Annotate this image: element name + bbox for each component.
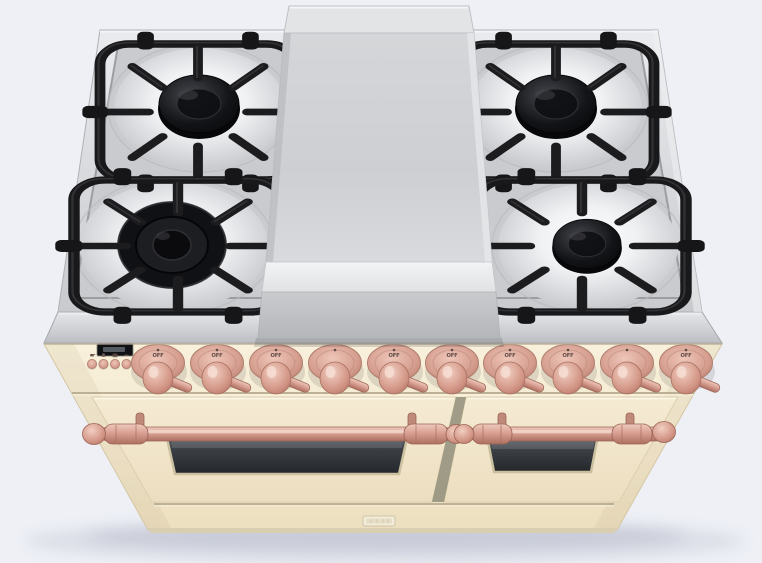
range-cooker-render: OFF OFF OFF OFF OFF OFF OFF bbox=[0, 0, 762, 563]
knob-label: OFF bbox=[681, 353, 693, 359]
handle-collar bbox=[472, 424, 512, 444]
knob-label: OFF bbox=[271, 353, 283, 359]
handle-collar bbox=[104, 424, 148, 444]
knob-label: OFF bbox=[563, 353, 575, 359]
brand-badge bbox=[363, 516, 395, 526]
handle-collar bbox=[612, 424, 652, 444]
minus-icon bbox=[125, 355, 129, 356]
knob-label: OFF bbox=[505, 353, 517, 359]
knob-label: OFF bbox=[212, 353, 224, 359]
oven-door-left bbox=[92, 397, 456, 502]
handle-bar bbox=[101, 427, 451, 441]
griddle-plate bbox=[266, 33, 492, 262]
knob-label: OFF bbox=[153, 353, 165, 359]
griddle-back-lip bbox=[284, 6, 474, 33]
handle-finial bbox=[653, 422, 676, 443]
handle-collar bbox=[404, 424, 448, 444]
griddle-front-edge bbox=[262, 262, 496, 292]
knob-label: OFF bbox=[389, 353, 401, 359]
handle-finial bbox=[83, 424, 106, 445]
burner-cap-back-right bbox=[515, 75, 597, 139]
handle-finial bbox=[454, 425, 474, 444]
griddle bbox=[254, 6, 504, 347]
cooktop bbox=[44, 6, 722, 347]
plinth-bottom-edge bbox=[148, 528, 617, 533]
burner-cap-back-left bbox=[158, 75, 240, 139]
burner-cap-front-right bbox=[552, 219, 622, 273]
knob-label: OFF bbox=[447, 353, 459, 359]
product-render-scene: OFF OFF OFF OFF OFF OFF OFF bbox=[0, 0, 762, 563]
